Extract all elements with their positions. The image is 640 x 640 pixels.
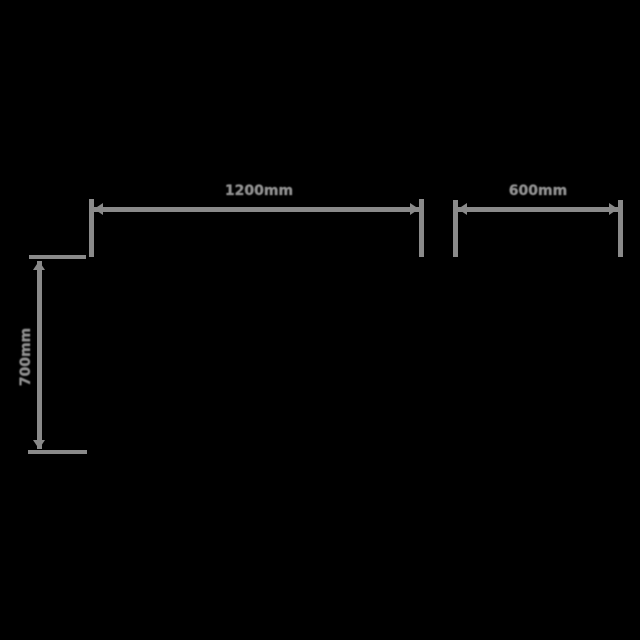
arrowhead-top bbox=[33, 261, 45, 270]
dimension-line bbox=[458, 207, 618, 212]
dimension-label-left-height: 700mm bbox=[19, 328, 33, 386]
dimension-drawing-canvas: 1200mm 600mm 700mm bbox=[0, 0, 640, 640]
arrowhead-left bbox=[458, 203, 467, 215]
arrowhead-right bbox=[609, 203, 618, 215]
arrowhead-bottom bbox=[33, 440, 45, 449]
dimension-label-top-width: 1200mm bbox=[225, 184, 293, 198]
extension-line-top bbox=[29, 255, 86, 259]
extension-line-bottom bbox=[28, 450, 87, 454]
dimension-line bbox=[37, 261, 42, 449]
dimension-label-right-width: 600mm bbox=[509, 184, 567, 198]
dimension-line bbox=[94, 207, 419, 212]
extension-line-right bbox=[419, 199, 424, 257]
arrowhead-right bbox=[410, 203, 419, 215]
extension-line-right bbox=[618, 200, 623, 257]
arrowhead-left bbox=[94, 203, 103, 215]
